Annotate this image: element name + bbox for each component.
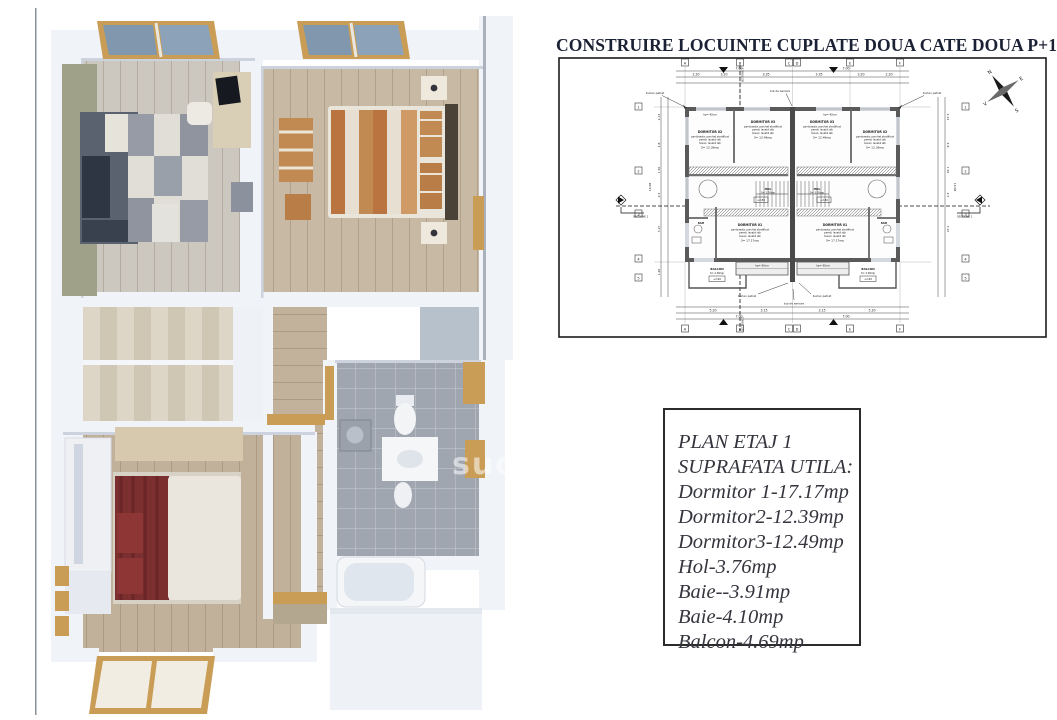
svg-text:+2.80: +2.80	[820, 198, 828, 202]
svg-text:3.15: 3.15	[946, 226, 950, 233]
svg-text:1: 1	[964, 106, 966, 110]
nightstand-top	[421, 76, 447, 100]
svg-text:DORMITOR 01: DORMITOR 01	[738, 223, 762, 227]
info-line: PLAN ETAJ 1	[678, 430, 859, 455]
terrace-floor	[330, 610, 482, 710]
svg-text:+2.60: +2.60	[713, 277, 721, 281]
svg-text:tavan: lavabil alb: tavan: lavabil alb	[752, 131, 774, 135]
svg-text:burlan patrat: burlan patrat	[923, 91, 942, 95]
svg-text:4.8: 4.8	[946, 143, 950, 148]
technical-floor-plan: N E S V 7.00 7.00 2.20 3.20 3.35 3.35 3.…	[558, 57, 1048, 339]
washing-machine	[340, 420, 371, 451]
floor-3d-render: sud	[35, 8, 540, 715]
svg-text:2.13: 2.13	[946, 114, 950, 121]
nightstand-bottom	[421, 222, 447, 244]
info-line: Dormitor 1-17.17mp	[678, 480, 859, 505]
bidet	[394, 482, 412, 508]
bathtub	[337, 557, 425, 607]
svg-text:tavan: lavabil alb: tavan: lavabil alb	[824, 234, 846, 238]
svg-text:D: D	[796, 62, 799, 66]
ottoman	[231, 182, 253, 212]
svg-text:16.08: 16.08	[648, 183, 652, 192]
svg-text:tavan: lavabil alb: tavan: lavabil alb	[699, 141, 721, 145]
svg-text:2.5: 2.5	[657, 193, 661, 198]
parapet-label-4: hp= 90cm	[823, 112, 837, 116]
svg-text:2.20: 2.20	[692, 73, 699, 77]
svg-text:burlan patrat: burlan patrat	[646, 91, 665, 95]
svg-text:S= 4.69mp: S= 4.69mp	[710, 271, 724, 275]
svg-text:tavan: lavabil alb: tavan: lavabil alb	[739, 234, 761, 238]
svg-text:DORMITOR 03: DORMITOR 03	[810, 120, 834, 124]
render-left-edge	[35, 8, 37, 715]
door-threshold-bottom	[273, 592, 327, 604]
rug	[128, 114, 208, 242]
svg-text:5.20: 5.20	[868, 309, 875, 313]
bathroom-cabinet-1	[463, 362, 485, 404]
svg-text:S= 3.76mp: S= 3.76mp	[761, 191, 775, 195]
svg-text:tub de aerisire: tub de aerisire	[770, 89, 791, 93]
listing-image: { "title": { "text": "CONSTRUIRE LOCUINT…	[0, 0, 1057, 720]
svg-text:S= 12.39mp: S= 12.39mp	[866, 145, 884, 149]
door-threshold-top	[267, 414, 325, 425]
section1-label-left: SECTIUNE 1	[633, 215, 649, 219]
svg-text:S= 12.49mp: S= 12.49mp	[813, 135, 831, 139]
bed-orange	[328, 104, 458, 220]
svg-text:tavan: lavabil alb: tavan: lavabil alb	[864, 141, 886, 145]
info-line: Hol-3.76mp	[678, 555, 859, 580]
parapet-label-2: hp= 90cm	[816, 264, 830, 268]
svg-text:16.08: 16.08	[953, 183, 957, 192]
balcony-door	[89, 656, 215, 714]
svg-text:2.13: 2.13	[657, 114, 661, 121]
svg-text:S= 4.69mp: S= 4.69mp	[861, 271, 875, 275]
svg-text:3.20: 3.20	[720, 73, 727, 77]
svg-text:BAIE: BAIE	[881, 222, 888, 225]
svg-text:1: 1	[637, 106, 639, 110]
parapet-label-3: hp= 90cm	[703, 112, 717, 116]
svg-text:5.20: 5.20	[709, 309, 716, 313]
picture-frames	[55, 566, 69, 636]
plan-title: CONSTRUIRE LOCUINTE CUPLATE DOUA CATE DO…	[556, 35, 1052, 56]
svg-text:3.20: 3.20	[857, 73, 864, 77]
svg-text:F: F	[899, 62, 901, 66]
bed-red	[113, 472, 241, 604]
info-line: Balcon-4.69mp	[678, 630, 859, 655]
svg-text:5: 5	[964, 277, 966, 281]
svg-text:+2.60: +2.60	[864, 277, 872, 281]
section2-label-bottom: SECTIUNE 2	[742, 316, 745, 331]
svg-text:HOL: HOL	[765, 187, 772, 191]
svg-text:1.50: 1.50	[946, 167, 950, 174]
surface-info-box: PLAN ETAJ 1 SUPRAFATA UTILA: Dormitor 1-…	[663, 408, 861, 646]
svg-text:DORMITOR 02: DORMITOR 02	[863, 130, 887, 134]
svg-text:BALCON: BALCON	[861, 267, 875, 271]
svg-text:S= 12.39mp: S= 12.39mp	[701, 145, 719, 149]
svg-text:S= 17.17mp: S= 17.17mp	[826, 238, 844, 242]
section1-label-right: SECTIUNE 1	[957, 215, 973, 219]
svg-text:2: 2	[964, 170, 966, 174]
dresser	[115, 427, 243, 461]
svg-text:S= 17.17mp: S= 17.17mp	[741, 238, 759, 242]
svg-text:BAIE: BAIE	[698, 222, 705, 225]
svg-text:DORMITOR 03: DORMITOR 03	[751, 120, 775, 124]
wardrobe	[65, 438, 111, 614]
svg-text:2.20: 2.20	[885, 73, 892, 77]
skylight-office	[97, 21, 220, 59]
svg-text:7.00: 7.00	[842, 315, 849, 319]
info-line: Baie--3.91mp	[678, 580, 859, 605]
toilet	[394, 395, 416, 435]
stairs	[83, 307, 263, 421]
svg-text:3.35: 3.35	[762, 73, 769, 77]
svg-text:tavan: lavabil alb: tavan: lavabil alb	[811, 131, 833, 135]
bathroom-door-frame	[325, 366, 334, 420]
svg-text:S= 3.76mp: S= 3.76mp	[810, 191, 824, 195]
svg-text:1.20: 1.20	[657, 269, 661, 276]
svg-text:F: F	[899, 328, 901, 332]
svg-text:3.35: 3.35	[815, 73, 822, 77]
svg-text:7.00: 7.00	[842, 67, 849, 71]
svg-text:burlan patrat: burlan patrat	[738, 294, 757, 298]
parapet-label-1: hp= 90cm	[755, 264, 769, 268]
svg-text:tub de aerisire: tub de aerisire	[784, 302, 805, 306]
party-wall	[790, 107, 795, 282]
svg-text:3.15: 3.15	[657, 226, 661, 233]
svg-text:BALCON: BALCON	[710, 267, 724, 271]
svg-text:HOL: HOL	[814, 187, 821, 191]
svg-text:1.50: 1.50	[657, 167, 661, 174]
info-line: SUPRAFATA UTILA:	[678, 455, 859, 480]
svg-text:D: D	[796, 328, 799, 332]
svg-text:2.5: 2.5	[946, 193, 950, 198]
info-line: Dormitor2-12.39mp	[678, 505, 859, 530]
svg-text:+2.80: +2.80	[757, 198, 765, 202]
svg-text:5: 5	[637, 277, 639, 281]
svg-text:S= 12.49mp: S= 12.49mp	[754, 135, 772, 139]
svg-text:3.15: 3.15	[818, 309, 825, 313]
info-line: Baie-4.10mp	[678, 605, 859, 630]
skylight-bedroom2	[297, 21, 410, 59]
svg-text:3.15: 3.15	[760, 309, 767, 313]
svg-text:2: 2	[637, 170, 639, 174]
svg-text:DORMITOR 02: DORMITOR 02	[698, 130, 722, 134]
svg-text:4.8: 4.8	[657, 143, 661, 148]
svg-text:burlan patrat: burlan patrat	[813, 294, 832, 298]
watermark: sud	[452, 447, 519, 482]
door-mat	[273, 604, 327, 624]
info-line: Dormitor3-12.49mp	[678, 530, 859, 555]
section2-label-top: SECTIUNE 2	[742, 67, 745, 82]
sink-vanity	[382, 437, 438, 481]
svg-text:DORMITOR 01: DORMITOR 01	[823, 223, 847, 227]
window-frame-right	[473, 196, 484, 250]
